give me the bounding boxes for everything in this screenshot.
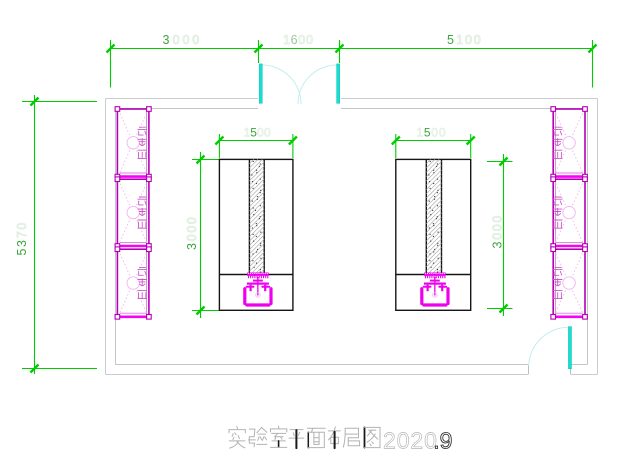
svg-text:70: 70 <box>15 221 29 238</box>
svg-text:3: 3 <box>491 240 505 249</box>
svg-text:100: 100 <box>456 33 483 47</box>
svg-text:00: 00 <box>257 126 271 140</box>
svg-text:00: 00 <box>431 126 446 140</box>
svg-text:3: 3 <box>185 241 199 250</box>
svg-text:2020: 2020 <box>383 428 438 454</box>
svg-text:53: 53 <box>15 239 29 256</box>
svg-text:.9: .9 <box>433 428 452 454</box>
svg-text:5: 5 <box>447 33 456 47</box>
svg-text:1: 1 <box>417 126 424 140</box>
svg-text:00: 00 <box>298 33 314 47</box>
svg-text:000: 000 <box>491 214 505 240</box>
svg-text:000: 000 <box>185 216 199 242</box>
svg-text:3: 3 <box>163 33 173 47</box>
svg-text:000: 000 <box>173 33 203 47</box>
svg-text:5: 5 <box>424 126 431 140</box>
